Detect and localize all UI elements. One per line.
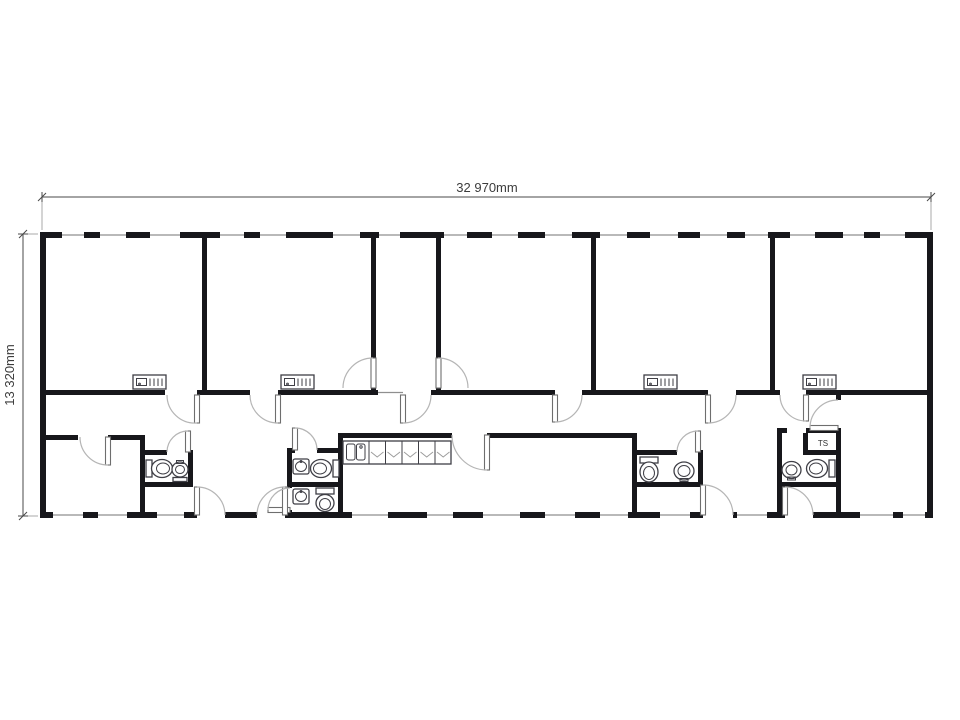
room-regions xyxy=(46,238,927,512)
door-leaf xyxy=(436,358,441,388)
room-bottom-left xyxy=(46,440,140,512)
wall-breakroom-right xyxy=(632,437,637,513)
bathroom-3 xyxy=(637,455,698,482)
wall-bath1-bottom xyxy=(145,482,193,487)
room-1 xyxy=(46,238,202,390)
room-4 xyxy=(596,238,770,390)
wall-bottomleft-room-right xyxy=(140,435,145,518)
wall-bath2-mid xyxy=(287,482,343,487)
floor-plan: 32 970mm 13 320mm xyxy=(0,0,960,720)
wall-rightroom-left-upper xyxy=(836,390,841,400)
bathroom-2a xyxy=(292,455,338,482)
wall-bath3-bottom xyxy=(637,482,703,487)
wall-anteroom-room3-upper xyxy=(436,232,441,358)
room-2 xyxy=(207,238,371,390)
bathroom-4 xyxy=(782,455,836,482)
break-room xyxy=(343,438,632,512)
door-leaf xyxy=(371,358,376,388)
extension-lines-left xyxy=(19,234,38,516)
wall-room4-room5 xyxy=(770,232,775,395)
entry-vestibule-2 xyxy=(703,487,777,512)
dimension-width-label: 32 970mm xyxy=(456,180,517,195)
wall-room3-room4 xyxy=(591,232,596,395)
room-3 xyxy=(441,238,591,390)
entry-vestibule-3 xyxy=(782,487,836,512)
wall-bath1-right xyxy=(188,450,193,487)
wall-bath4-bottom xyxy=(777,482,841,487)
corridor xyxy=(46,395,836,435)
wall-bath3-right xyxy=(698,450,703,487)
wall-rightroom-left-lower xyxy=(836,428,841,518)
bathroom-1 xyxy=(145,455,188,482)
wall-right xyxy=(927,232,933,518)
dimension-left: 13 320mm xyxy=(2,230,38,520)
floor-plan-page: 32 970mm 13 320mm xyxy=(0,0,960,720)
room-5 xyxy=(775,238,927,390)
wall-ts-bottom xyxy=(803,450,841,455)
wall-rightblock-left xyxy=(777,428,782,513)
technical-space xyxy=(808,433,836,450)
wall-room1-room2 xyxy=(202,232,207,395)
bathroom-2b xyxy=(292,487,338,512)
dimension-height-label: 13 320mm xyxy=(2,344,17,405)
wall-room2-anteroom-upper xyxy=(371,232,376,358)
entry-vestibule-1 xyxy=(145,487,287,512)
wall-left xyxy=(40,232,46,518)
extension-lines-top xyxy=(42,194,931,230)
anteroom xyxy=(376,238,436,390)
dimension-top: 32 970mm xyxy=(38,180,935,230)
room-right xyxy=(841,395,927,512)
